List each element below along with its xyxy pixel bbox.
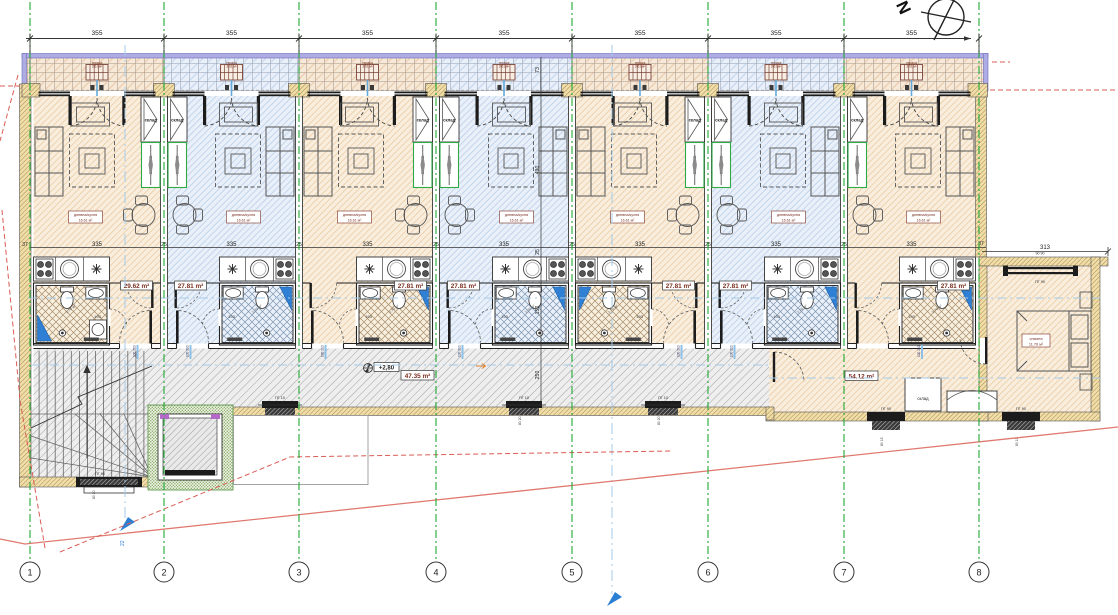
svg-text:22: 22 [120, 540, 126, 546]
svg-text:6: 6 [705, 568, 710, 578]
svg-text:25: 25 [535, 249, 541, 255]
svg-text:3.61 м²: 3.61 м² [635, 64, 645, 68]
svg-text:27.81 m²: 27.81 m² [178, 283, 204, 290]
svg-text:склад: склад [715, 118, 727, 123]
svg-text:3: 3 [296, 568, 301, 578]
svg-text:дневна/кухня: дневна/кухня [912, 213, 935, 217]
svg-text:193: 193 [636, 314, 643, 319]
svg-text:16.61 м²: 16.61 м² [237, 219, 251, 223]
svg-text:80 20: 80 20 [518, 416, 522, 425]
svg-text:100 210: 100 210 [321, 345, 325, 357]
svg-text:27.81 m²: 27.81 m² [451, 283, 477, 290]
svg-text:дневна/кухня: дневна/кухня [74, 213, 97, 217]
svg-text:16.61 м²: 16.61 м² [621, 219, 635, 223]
svg-text:3.61 м²: 3.61 м² [92, 64, 102, 68]
svg-text:54.12 m²: 54.12 m² [849, 374, 875, 381]
svg-text:355: 355 [91, 30, 102, 37]
svg-text:склад: склад [917, 396, 929, 401]
svg-text:335: 335 [906, 242, 917, 248]
svg-text:100 210: 100 210 [458, 345, 462, 357]
svg-text:дневна/кухня: дневна/кухня [616, 213, 639, 217]
svg-text:355: 355 [634, 30, 645, 37]
svg-text:8: 8 [976, 568, 981, 578]
svg-text:80 15: 80 15 [1015, 437, 1019, 446]
svg-text:ПГ 90: ПГ 90 [1016, 407, 1026, 411]
svg-text:ПГ 90: ПГ 90 [1035, 280, 1045, 284]
svg-text:73: 73 [535, 67, 541, 73]
svg-text:193: 193 [908, 314, 915, 319]
svg-text:335: 335 [771, 242, 782, 248]
svg-text:16.61 м²: 16.61 м² [917, 219, 931, 223]
svg-text:335: 335 [499, 242, 510, 248]
svg-text:313: 313 [1040, 245, 1051, 251]
svg-text:склад: склад [443, 118, 455, 123]
svg-text:27.81 m²: 27.81 m² [723, 283, 749, 290]
svg-text:193: 193 [228, 314, 235, 319]
svg-text:3.61 м²: 3.61 м² [226, 64, 236, 68]
svg-text:100 210: 100 210 [677, 345, 681, 357]
svg-text:100 210: 100 210 [917, 345, 921, 357]
svg-text:355: 355 [226, 30, 237, 37]
svg-text:193: 193 [94, 314, 101, 319]
svg-text:дневна/кухня: дневна/кухня [777, 213, 800, 217]
svg-text:16.61 м²: 16.61 м² [782, 219, 796, 223]
svg-text:355: 355 [906, 30, 917, 37]
svg-text:+2,80: +2,80 [379, 366, 395, 372]
svg-text:спалня: спалня [1029, 336, 1042, 341]
svg-text:дневна/кухня: дневна/кухня [232, 213, 255, 217]
svg-text:3.61 м²: 3.61 м² [771, 64, 781, 68]
svg-text:250: 250 [535, 371, 541, 380]
svg-text:3.61 м²: 3.61 м² [906, 64, 916, 68]
svg-text:80 15: 80 15 [880, 437, 884, 446]
svg-text:80 20: 80 20 [657, 416, 661, 425]
svg-text:193: 193 [501, 314, 508, 319]
svg-text:193: 193 [365, 314, 372, 319]
svg-text:5: 5 [569, 568, 574, 578]
svg-text:дневна/кухня: дневна/кухня [343, 213, 366, 217]
svg-text:27.81 m²: 27.81 m² [398, 283, 424, 290]
svg-text:47.35 m²: 47.35 m² [405, 373, 431, 380]
svg-text:склад: склад [417, 118, 429, 123]
svg-text:3.61 м²: 3.61 м² [362, 64, 372, 68]
svg-text:1: 1 [27, 568, 32, 578]
svg-text:склад: склад [689, 118, 701, 123]
svg-text:355: 355 [362, 30, 373, 37]
svg-text:ПГ 10: ПГ 10 [275, 396, 285, 400]
svg-text:склад: склад [851, 118, 863, 123]
svg-text:склад: склад [171, 118, 183, 123]
svg-text:3.61 м²: 3.61 м² [499, 64, 509, 68]
svg-text:193: 193 [773, 314, 780, 319]
svg-text:100 210: 100 210 [186, 345, 190, 357]
svg-text:4: 4 [433, 568, 438, 578]
svg-text:ПГ 10: ПГ 10 [658, 396, 668, 400]
svg-text:80 20: 80 20 [92, 490, 96, 499]
svg-text:90 90: 90 90 [1036, 252, 1045, 256]
svg-text:ПГ 10: ПГ 10 [519, 396, 529, 400]
svg-text:склад: склад [145, 118, 157, 123]
svg-text:11.76 м²: 11.76 м² [1029, 343, 1044, 347]
svg-text:16.61 м²: 16.61 м² [348, 219, 362, 223]
svg-text:27.81 m²: 27.81 m² [941, 283, 967, 290]
svg-text:355: 355 [770, 30, 781, 37]
svg-text:490: 490 [535, 166, 541, 175]
svg-text:ПГ 90: ПГ 90 [95, 472, 105, 476]
svg-text:29.62 m²: 29.62 m² [124, 283, 150, 290]
svg-text:355: 355 [498, 30, 509, 37]
svg-text:150: 150 [535, 306, 541, 315]
svg-text:2: 2 [161, 568, 166, 578]
svg-text:37: 37 [22, 242, 28, 248]
svg-text:27.81 m²: 27.81 m² [666, 283, 692, 290]
svg-text:335: 335 [92, 242, 103, 248]
svg-text:335: 335 [635, 242, 646, 248]
svg-text:7: 7 [841, 568, 846, 578]
svg-text:16.61 м²: 16.61 м² [510, 219, 524, 223]
svg-text:335: 335 [362, 242, 373, 248]
svg-text:335: 335 [226, 242, 237, 248]
svg-text:дневна/кухня: дневна/кухня [505, 213, 528, 217]
svg-text:ПГ 90: ПГ 90 [881, 407, 891, 411]
svg-text:16.61 м²: 16.61 м² [79, 219, 93, 223]
svg-text:100 210: 100 210 [730, 345, 734, 357]
